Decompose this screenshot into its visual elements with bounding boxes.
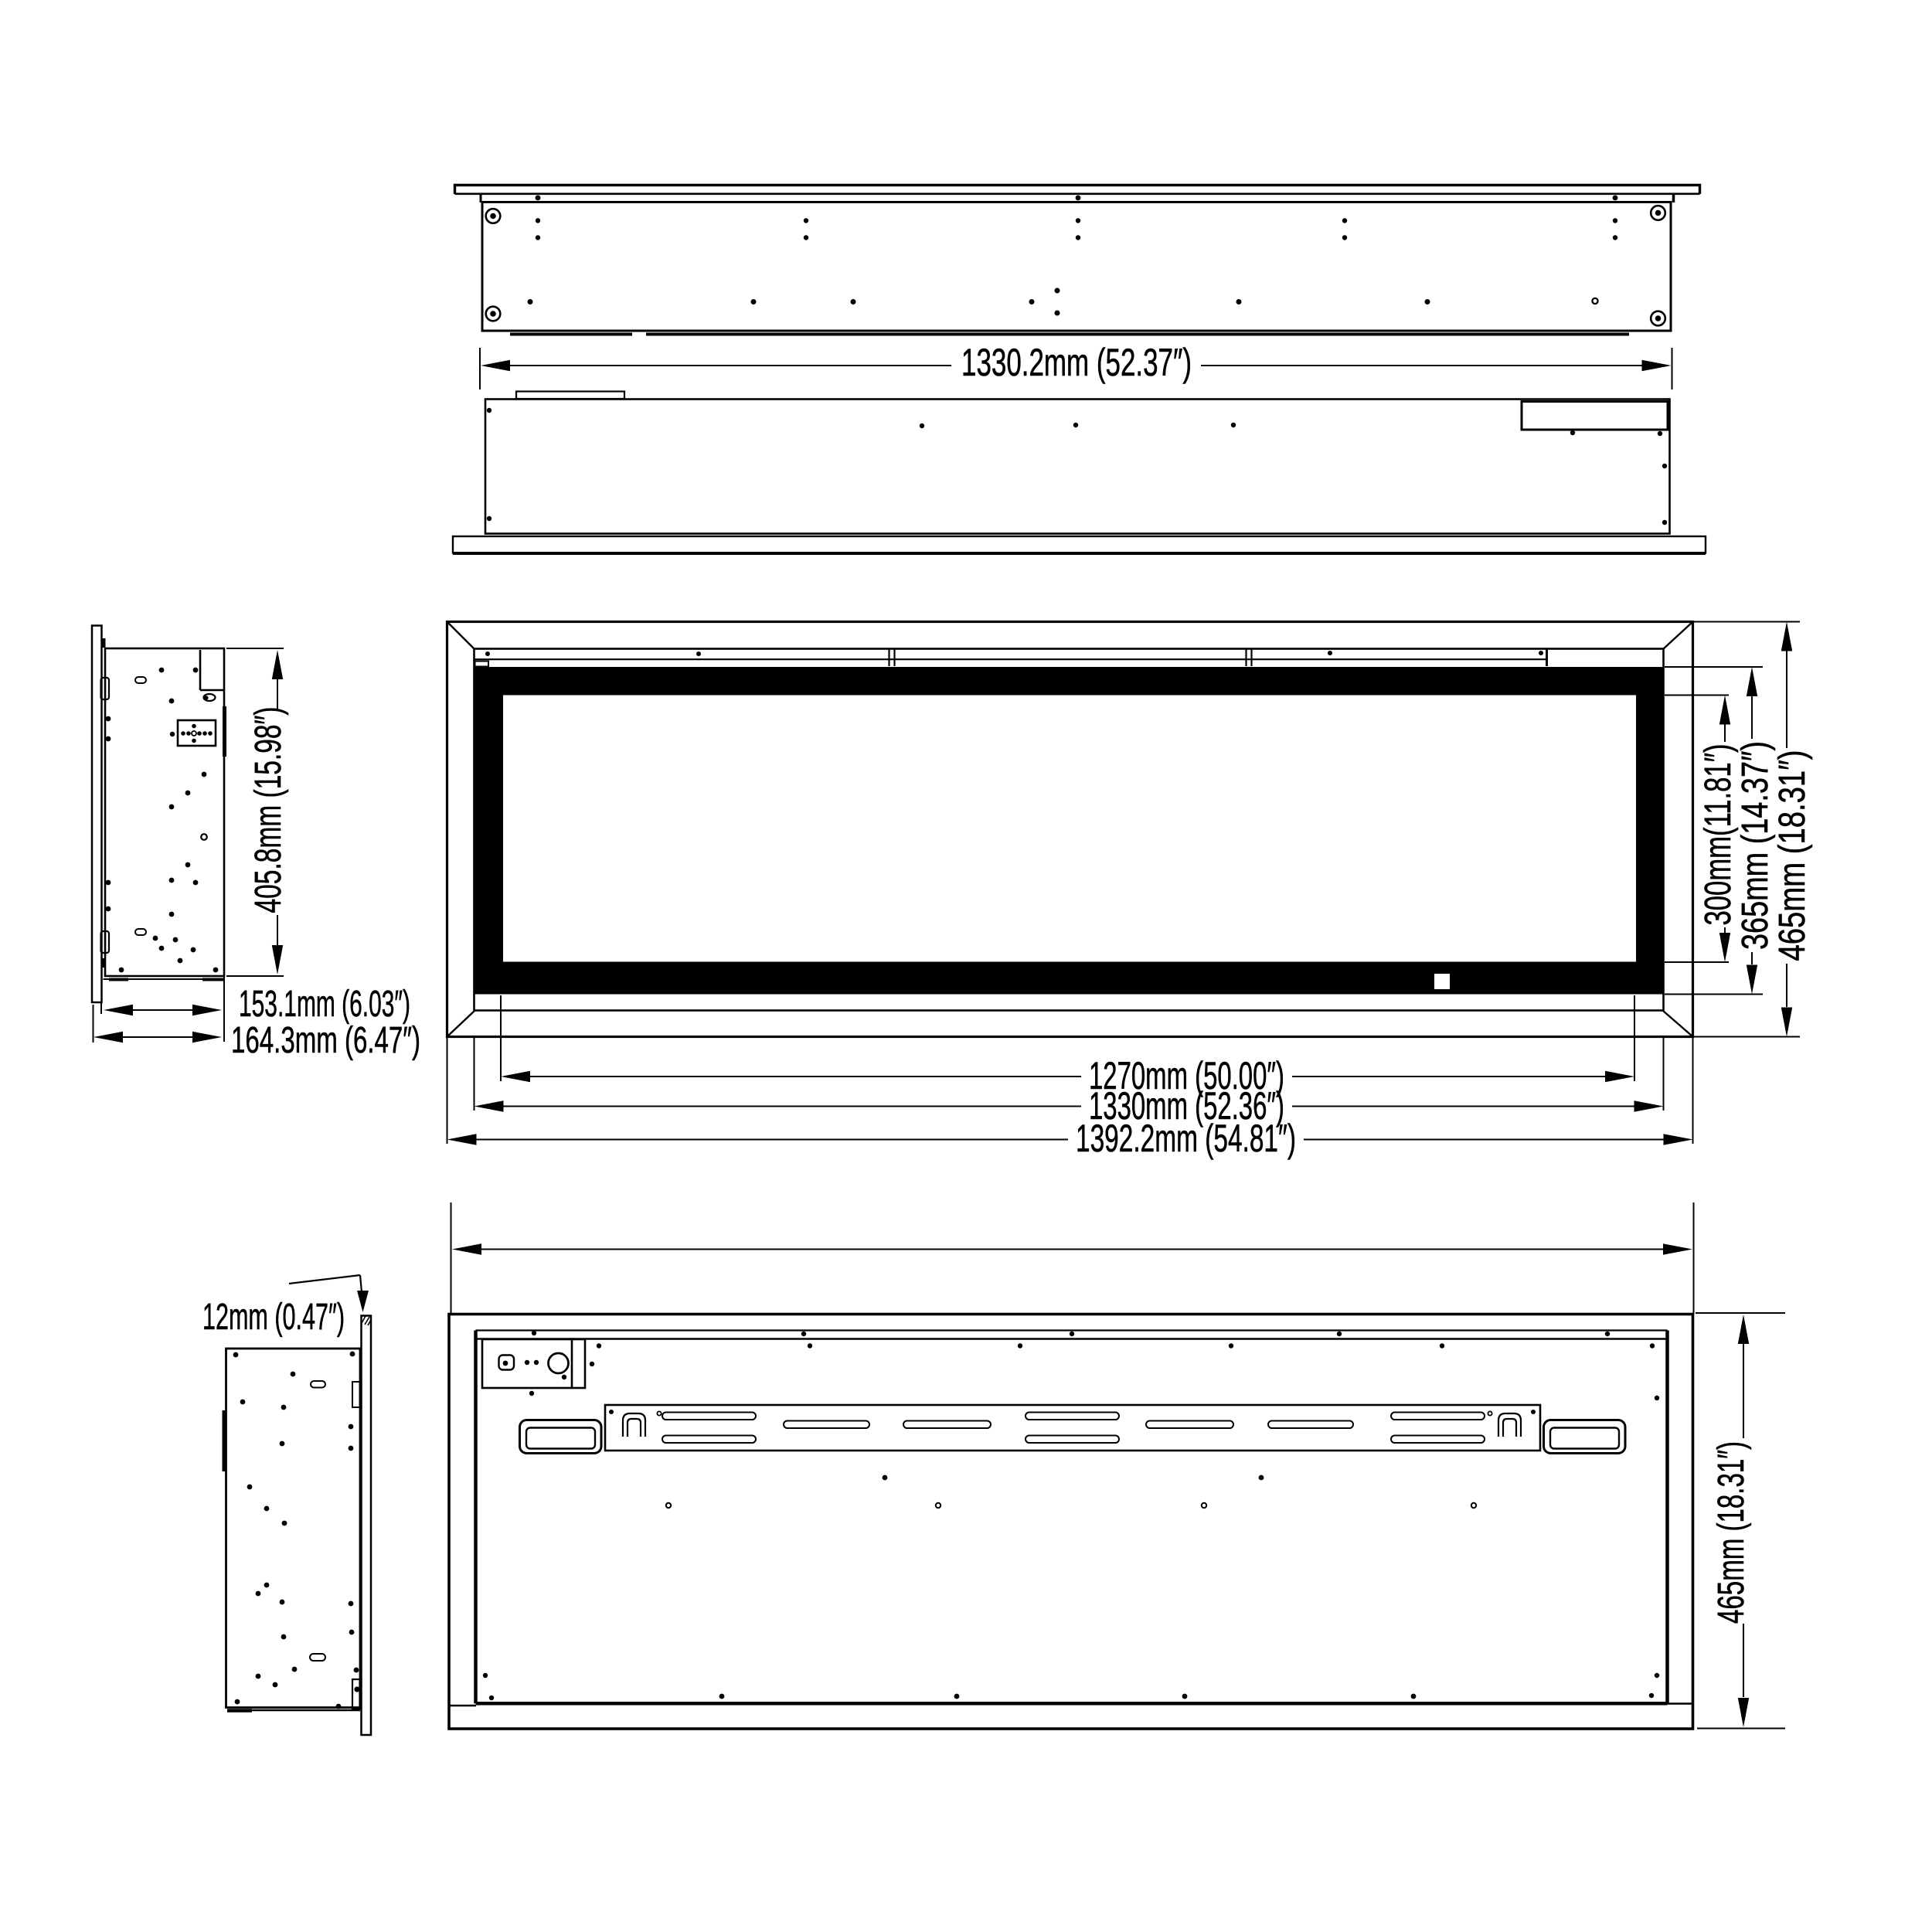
- svg-text:1330.2mm (52.37″): 1330.2mm (52.37″): [961, 341, 1192, 384]
- svg-text:1392.2mm (54.81″): 1392.2mm (54.81″): [1076, 1117, 1296, 1160]
- svg-text:465mm (18.31″): 465mm (18.31″): [1772, 750, 1813, 961]
- svg-text:300mm(11.81″): 300mm(11.81″): [1698, 744, 1739, 926]
- svg-text:465mm (18.31″): 465mm (18.31″): [1711, 1441, 1752, 1624]
- svg-text:12mm (0.47″): 12mm (0.47″): [202, 1297, 345, 1338]
- svg-text:365mm (14.37″): 365mm (14.37″): [1735, 741, 1776, 950]
- svg-text:164.3mm (6.47″): 164.3mm (6.47″): [231, 1020, 420, 1061]
- svg-text:405.8mm (15.98″): 405.8mm (15.98″): [248, 707, 289, 913]
- svg-text:153.1mm (6.03″): 153.1mm (6.03″): [239, 984, 410, 1025]
